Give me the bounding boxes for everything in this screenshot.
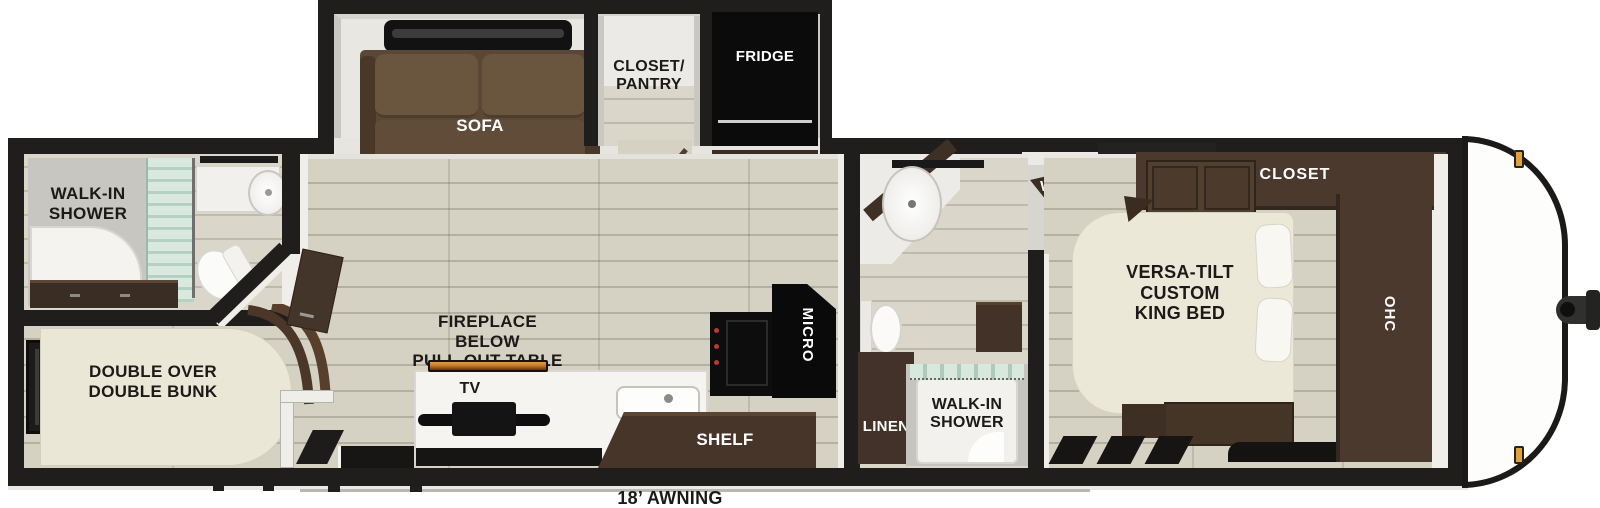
bath-bedroom-wall	[1028, 250, 1044, 468]
hitch-head	[1586, 290, 1600, 330]
closet-pantry-label: CLOSET/ PANTRY	[598, 58, 700, 95]
door-frame-tick	[213, 486, 224, 491]
entry-door-mat	[338, 446, 414, 468]
rear-bath-cabinet	[30, 280, 178, 308]
rear-mirror	[200, 156, 278, 163]
cabinet-handle	[70, 294, 80, 297]
closet-pantry-floor	[604, 86, 694, 146]
door-frame-tick	[263, 486, 274, 491]
range-knob	[714, 328, 719, 333]
awning-label: 18’ AWNING	[580, 489, 760, 507]
rear-bath-right-wall	[282, 138, 300, 254]
pantry-wall-left	[584, 12, 598, 146]
rear-sink-drain	[265, 189, 272, 196]
mid-bath-vanity	[976, 302, 1022, 352]
stepwell-wall-cap	[280, 390, 334, 403]
sofa-window-glass	[392, 29, 564, 38]
ohc-label: OHC	[1382, 282, 1398, 346]
console-kick	[416, 448, 602, 466]
rv-floorplan: 18’ AWNING SOFA CLOSET/ PANTRY FRIDGE	[0, 0, 1600, 508]
sofa-back-cushion	[482, 54, 585, 118]
mid-shower-label: WALK-IN SHOWER	[912, 396, 1022, 433]
hitch-ring	[1560, 302, 1575, 317]
clearance-light	[1514, 150, 1524, 168]
front-wall-face	[1434, 154, 1448, 468]
closet-label: CLOSET	[1240, 166, 1350, 184]
rear-shower-door-rail	[192, 158, 195, 298]
sofa-back-cushion	[375, 54, 478, 118]
rear-bath-right-wall-face	[300, 154, 308, 258]
mid-bath-sink-drain	[908, 200, 916, 208]
tv-mount	[452, 402, 516, 436]
bunk-label: DOUBLE OVER DOUBLE BUNK	[48, 362, 258, 401]
cabinet-handle	[120, 294, 130, 297]
pantry-wall-right	[700, 12, 712, 146]
bedroom-front-step	[1228, 442, 1336, 462]
kitchen-faucet	[664, 394, 673, 403]
range-knob	[714, 344, 719, 349]
mid-toilet-bowl	[870, 304, 902, 354]
bath-bedroom-wall-face	[1044, 254, 1049, 468]
tv-label: TV	[430, 380, 510, 398]
mid-shower-glass	[910, 364, 1024, 380]
front-cap	[1462, 136, 1568, 488]
fridge-label: FRIDGE	[712, 48, 818, 65]
range	[710, 312, 774, 396]
fireplace-insert	[428, 360, 548, 372]
door-frame-tick	[328, 486, 340, 492]
range-grate	[726, 320, 768, 386]
door-handle	[300, 312, 314, 318]
cabinet-door	[1152, 166, 1198, 210]
micro-label: MICRO	[800, 302, 816, 368]
fridge-shelf-line	[718, 120, 812, 123]
sofa-window	[384, 20, 572, 52]
door-frame-tick	[410, 486, 422, 492]
king-bed-label: VERSA-TILT CUSTOM KING BED	[1090, 262, 1270, 324]
clearance-light	[1514, 446, 1524, 464]
bunk-window-slat	[35, 349, 39, 425]
bed-side-cabinet	[1122, 404, 1166, 438]
fridge	[712, 12, 818, 146]
range-knob	[714, 360, 719, 365]
sofa-label: SOFA	[360, 116, 600, 136]
shelf-label: SHELF	[650, 430, 800, 450]
rear-shower-label: WALK-IN SHOWER	[30, 184, 146, 223]
